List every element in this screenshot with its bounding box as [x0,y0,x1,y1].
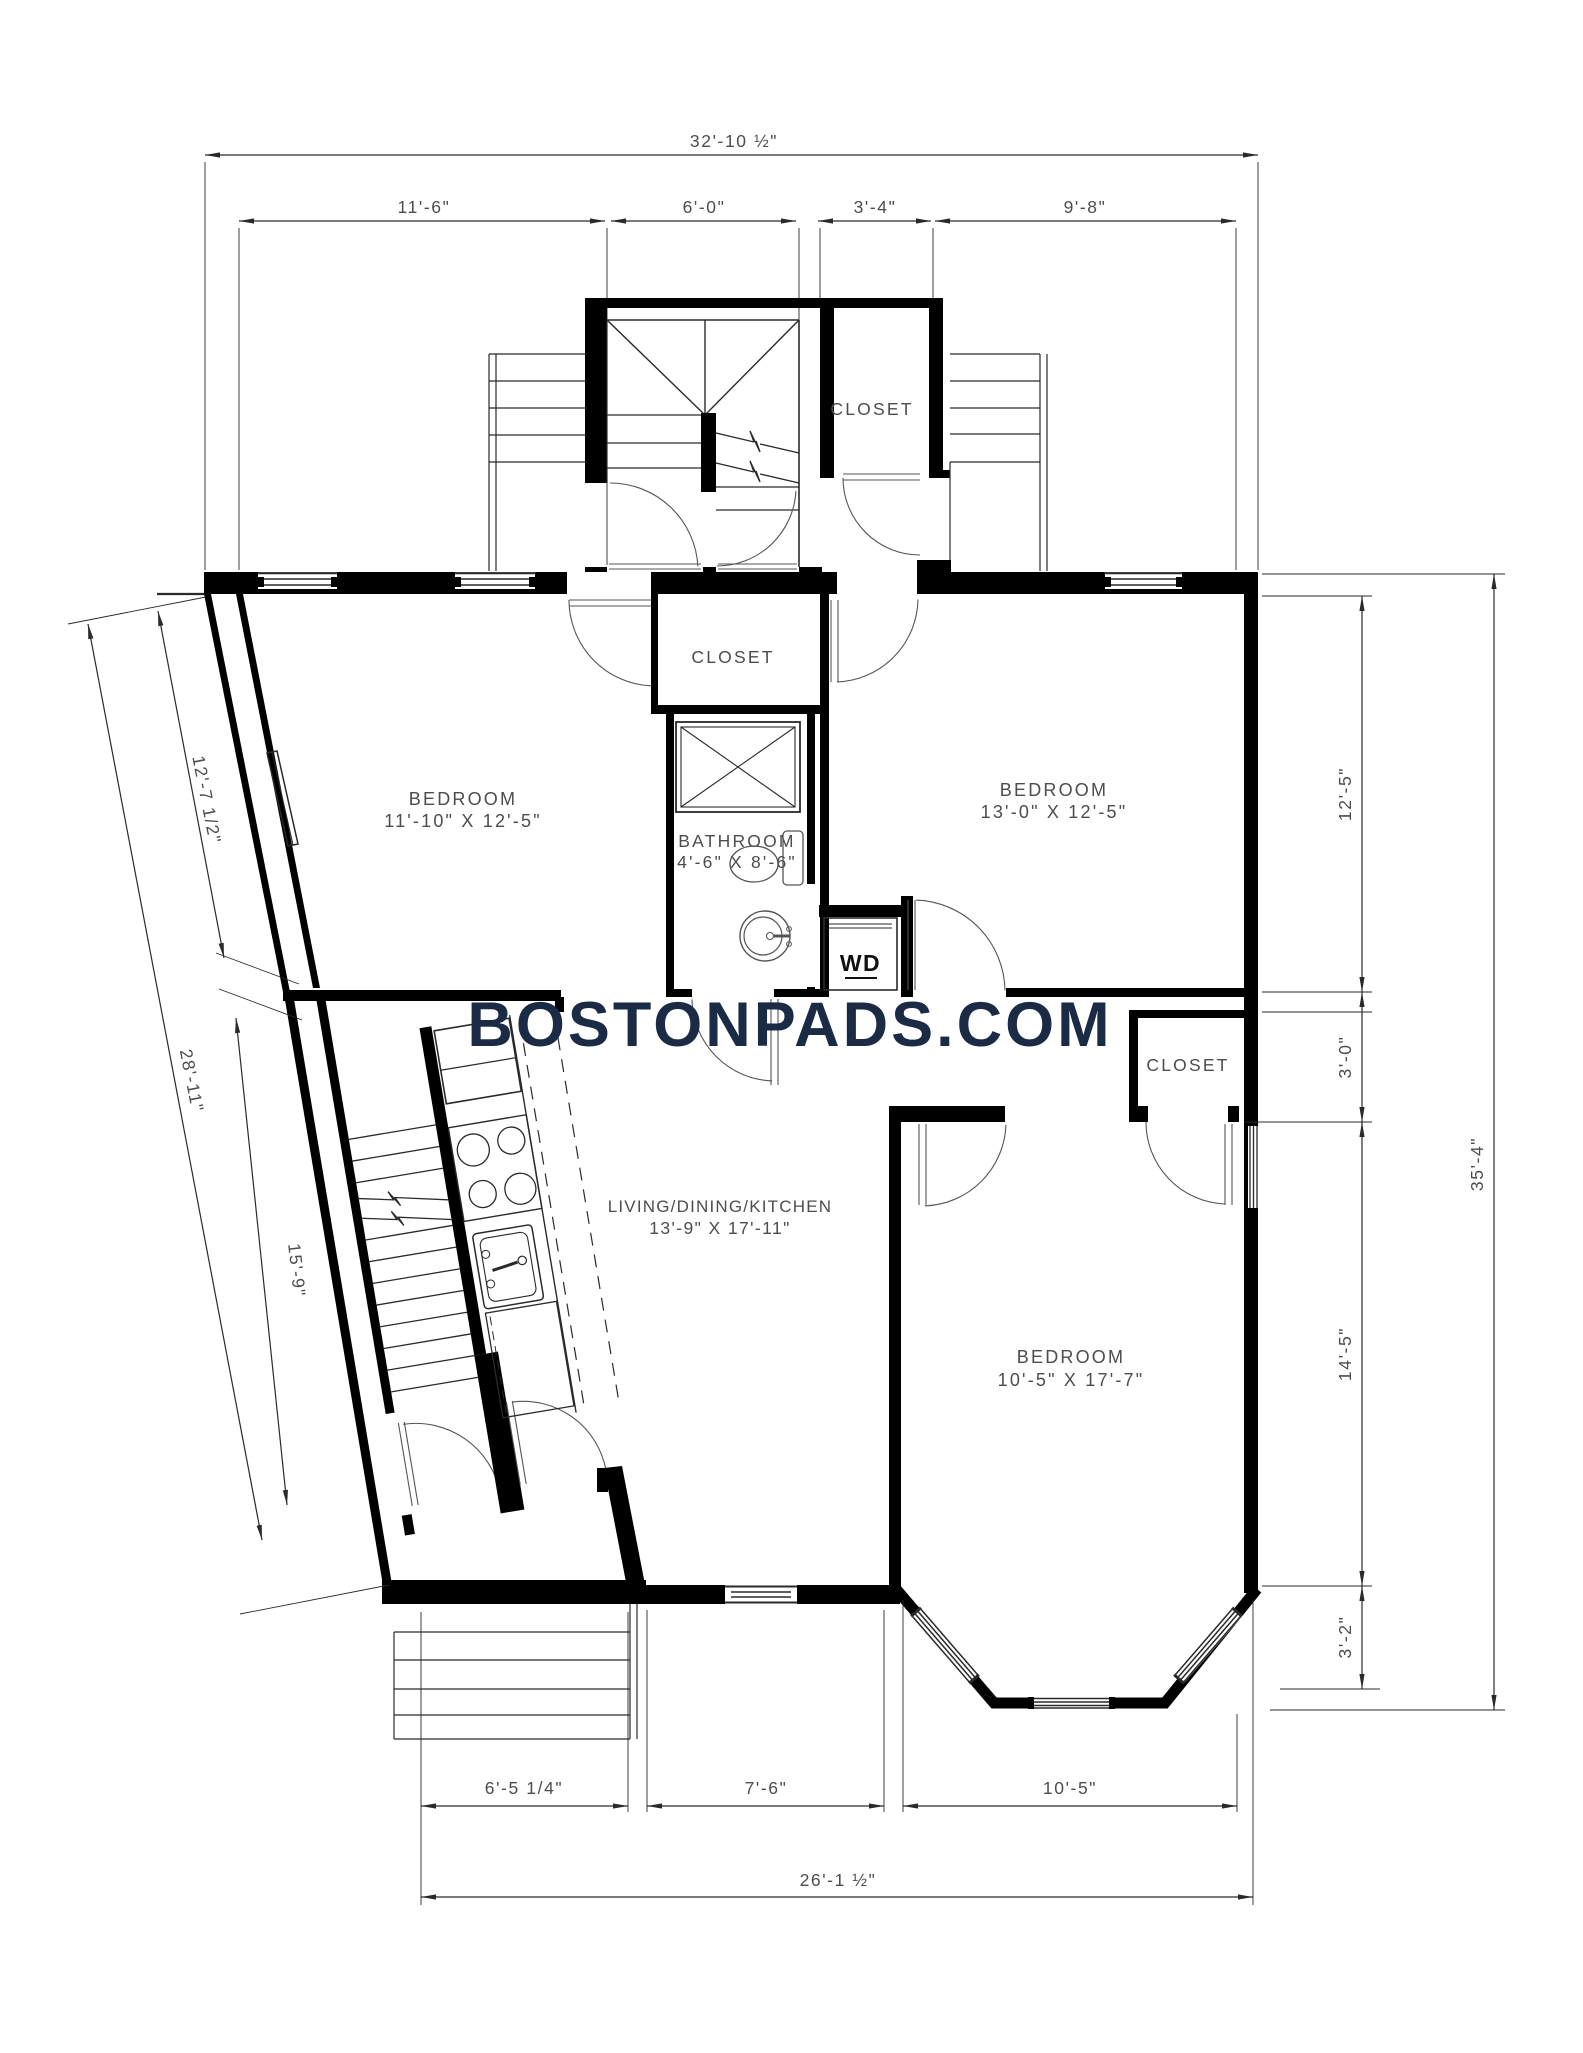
svg-text:26'-1 ½": 26'-1 ½" [800,1870,877,1890]
svg-text:10'-5": 10'-5" [1043,1778,1097,1798]
svg-text:BEDROOM: BEDROOM [1017,1347,1125,1367]
svg-text:BEDROOM: BEDROOM [1000,780,1108,800]
svg-text:6'-5 1/4": 6'-5 1/4" [485,1778,563,1798]
svg-text:3'-0": 3'-0" [1335,1036,1355,1079]
svg-text:10'-5" X 17'-7": 10'-5" X 17'-7" [998,1370,1145,1390]
svg-text:LIVING/DINING/KITCHEN: LIVING/DINING/KITCHEN [608,1197,833,1216]
svg-text:13'-9" X 17'-11": 13'-9" X 17'-11" [649,1218,790,1238]
svg-text:WD: WD [840,950,881,976]
svg-text:BATHROOM: BATHROOM [678,831,795,851]
svg-text:9'-8": 9'-8" [1064,197,1107,217]
svg-text:12'-5": 12'-5" [1335,767,1355,821]
svg-text:13'-0" X 12'-5": 13'-0" X 12'-5" [981,802,1128,822]
svg-text:35'-4": 35'-4" [1467,1137,1487,1191]
svg-text:3'-4": 3'-4" [854,197,897,217]
svg-text:11'-10" X 12'-5": 11'-10" X 12'-5" [384,811,542,831]
svg-text:CLOSET: CLOSET [691,647,774,667]
svg-text:3'-2": 3'-2" [1335,1616,1355,1659]
svg-text:4'-6" X 8'-6": 4'-6" X 8'-6" [677,852,797,872]
svg-text:6'-0": 6'-0" [683,197,726,217]
svg-text:CLOSET: CLOSET [1146,1055,1229,1075]
svg-text:11'-6": 11'-6" [398,197,451,217]
svg-text:7'-6": 7'-6" [745,1778,788,1798]
svg-text:CLOSET: CLOSET [830,399,913,419]
svg-text:14'-5": 14'-5" [1335,1327,1355,1381]
svg-text:32'-10 ½": 32'-10 ½" [690,131,778,151]
svg-text:BEDROOM: BEDROOM [409,789,517,809]
svg-text:BOSTONPADS.COM: BOSTONPADS.COM [467,990,1112,1060]
